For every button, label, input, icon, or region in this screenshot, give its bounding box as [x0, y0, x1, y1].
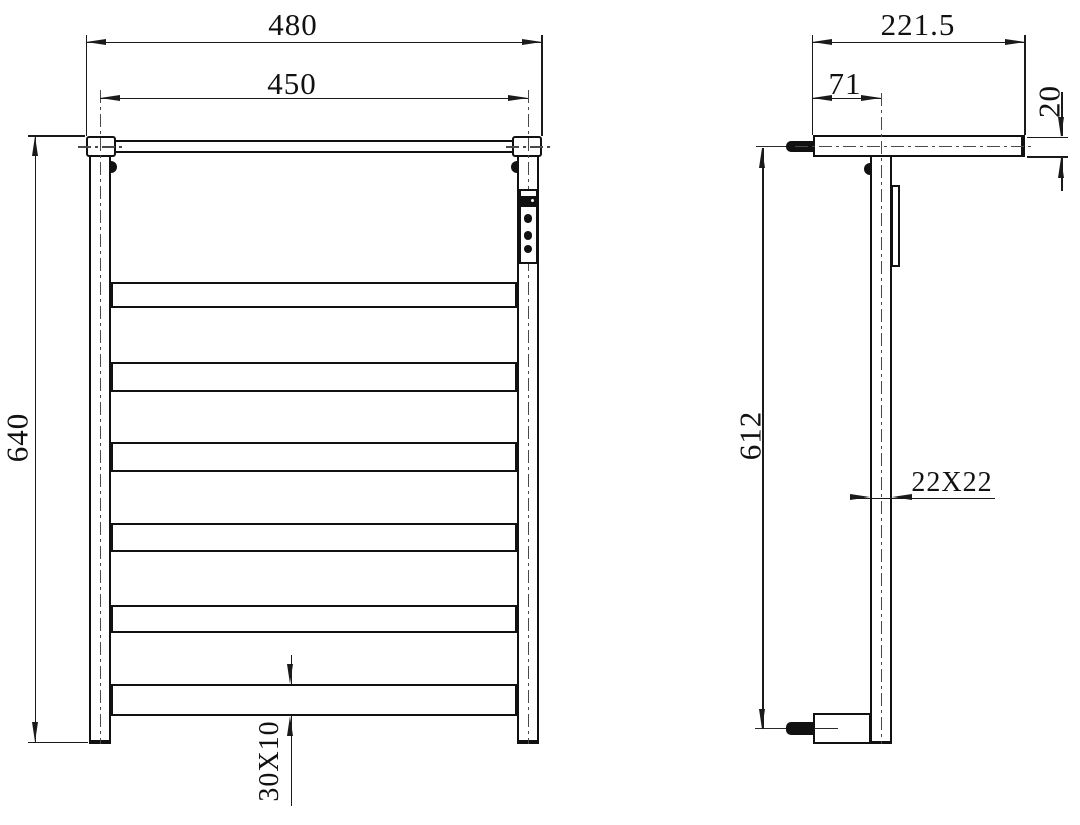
dim-label-overall-width: 480 — [255, 9, 331, 40]
rung — [111, 362, 517, 392]
arrowhead-icon — [100, 95, 120, 101]
centerline — [881, 93, 883, 744]
dim-label-overall-depth: 221.5 — [870, 9, 966, 40]
technical-drawing-canvas: 480 450 640 — [0, 0, 1080, 825]
arrowhead-icon — [32, 136, 38, 156]
arrowhead-icon — [759, 148, 765, 168]
extension-line — [1027, 137, 1068, 139]
top-rail — [114, 140, 514, 153]
control-button-icon — [524, 231, 533, 240]
dim-label-wall-to-post: 71 — [820, 68, 870, 99]
extension-line — [756, 146, 790, 147]
arrowhead-icon — [850, 494, 870, 500]
arrowhead-icon — [759, 709, 765, 729]
wall-plug-icon — [786, 722, 814, 735]
dim-label-bar-profile: 30X10 — [256, 713, 284, 809]
centerline — [795, 146, 1032, 148]
arrowhead-icon — [812, 39, 832, 45]
arrowhead-icon — [287, 664, 293, 684]
dim-label-shelf-thickness: 20 — [1034, 72, 1065, 132]
control-display — [521, 196, 536, 207]
control-button-icon — [524, 214, 533, 223]
centerline — [100, 90, 102, 744]
control-button-icon — [524, 245, 533, 254]
arrowhead-icon — [32, 722, 38, 742]
arrowhead-icon — [86, 39, 106, 45]
arrowhead-icon — [522, 39, 542, 45]
mount-stud-icon — [511, 161, 517, 173]
dim-label-rail-center-width: 450 — [254, 68, 330, 99]
control-panel — [519, 189, 538, 264]
dim-label-mount-height: 612 — [735, 398, 766, 474]
mount-stud-icon — [111, 161, 117, 173]
extension-line — [86, 35, 88, 136]
extension-line — [1024, 35, 1026, 135]
rung — [111, 282, 517, 308]
mount-stud-icon — [864, 163, 871, 175]
rung — [111, 605, 517, 633]
rung — [111, 684, 517, 716]
arrowhead-icon — [287, 716, 293, 736]
rung — [111, 523, 517, 552]
centerline — [78, 146, 122, 148]
extension-line — [541, 35, 543, 136]
rung — [111, 442, 517, 472]
arrowhead-icon — [508, 95, 528, 101]
extension-line — [812, 35, 814, 135]
arrowhead-icon — [1058, 158, 1064, 178]
arrowhead-icon — [1005, 39, 1025, 45]
control-panel-side-profile — [891, 185, 900, 267]
dim-label-overall-height: 640 — [2, 400, 33, 476]
dimension-line — [35, 136, 37, 742]
centerline — [506, 146, 550, 148]
indicator-led-icon — [531, 199, 534, 202]
dim-label-post-profile: 22X22 — [904, 469, 1000, 497]
